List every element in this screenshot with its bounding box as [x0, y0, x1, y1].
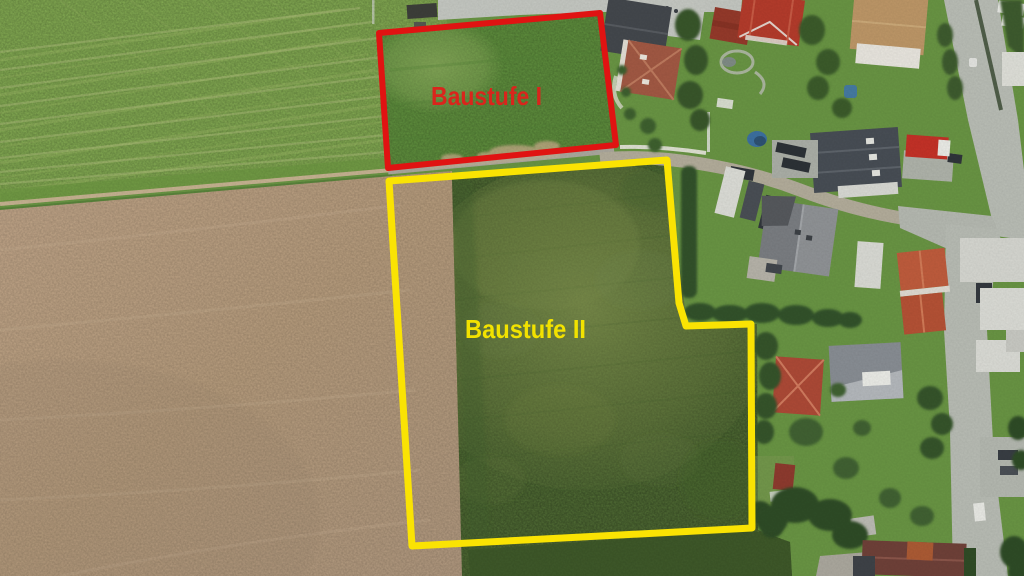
svg-text:Baustufe I: Baustufe I	[431, 81, 542, 111]
svg-text:Baustufe II: Baustufe II	[465, 314, 586, 344]
